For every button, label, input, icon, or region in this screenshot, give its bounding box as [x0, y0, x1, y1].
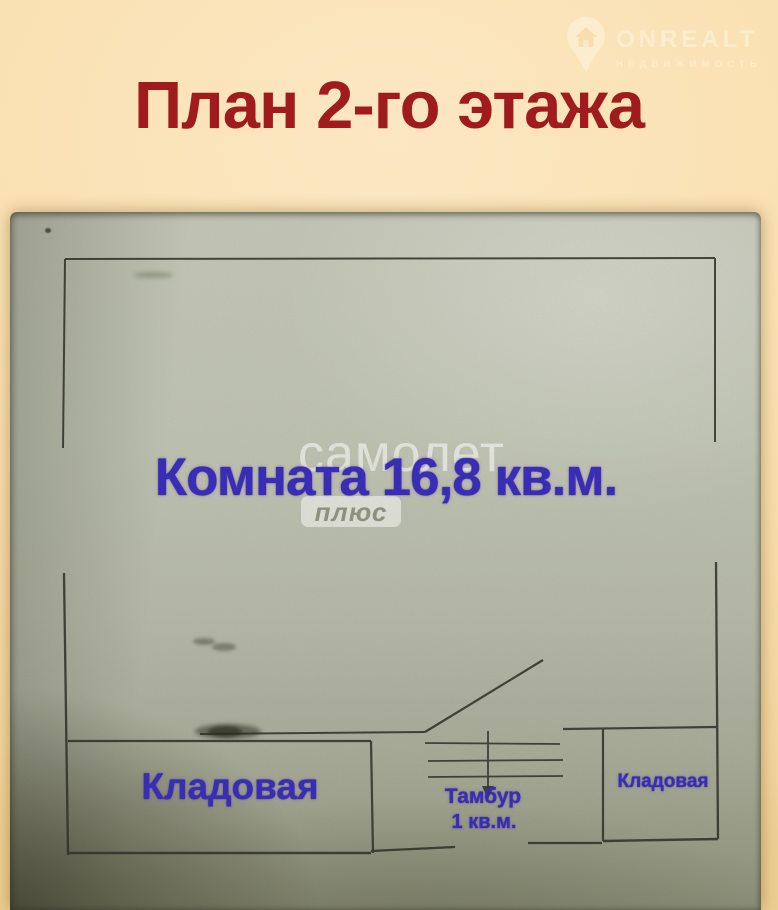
- floorplan-walls: [10, 212, 761, 910]
- onrealt-brand: ONREALT: [616, 28, 762, 52]
- paper-smudge: [193, 638, 215, 645]
- paper-speck: [45, 228, 51, 233]
- vestibule-area-label: 1 кв.м.: [434, 812, 534, 832]
- floorplan-photo: самолет плюс Комната 16,8 кв.м. Кладовая…: [10, 212, 761, 910]
- storage-left-label: Кладовая: [110, 768, 350, 805]
- vestibule-label: Тамбур: [433, 786, 533, 807]
- storage-right-label: Кладовая: [605, 772, 721, 791]
- paper-smudge: [133, 272, 173, 278]
- map-pin-house-icon: [566, 16, 606, 74]
- page-title: План 2-го этажа: [0, 72, 778, 139]
- onrealt-tagline: НЕДВИЖИМОСТЬ: [616, 60, 762, 70]
- paper-smudge: [212, 643, 236, 651]
- room-label: Комната 16,8 кв.м.: [126, 451, 646, 504]
- onrealt-watermark: ONREALT НЕДВИЖИМОСТЬ: [566, 16, 762, 74]
- paper-smudge: [208, 726, 242, 737]
- listing-image: План 2-го этажа ONREALT НЕДВИЖИМОСТЬ: [0, 0, 778, 910]
